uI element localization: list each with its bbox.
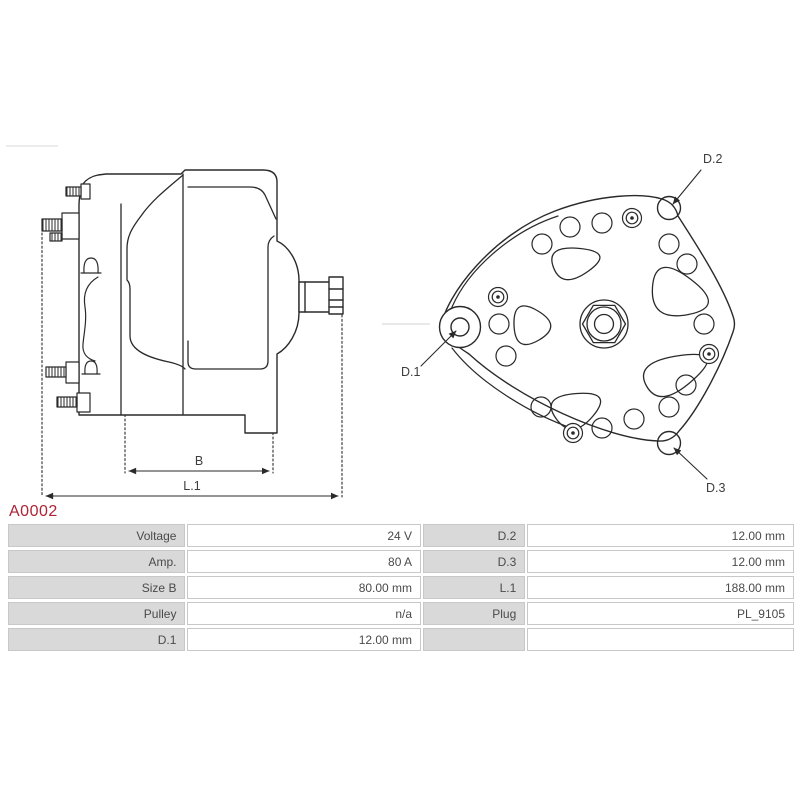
spec-value-cell: 80 A <box>187 550 421 573</box>
spec-row: Amp. 80 A D.3 12.00 mm <box>8 550 794 573</box>
spec-value-cell: 12.00 mm <box>187 628 421 651</box>
spec-row: Voltage 24 V D.2 12.00 mm <box>8 524 794 547</box>
spec-row: Pulley n/a Plug PL_9105 <box>8 602 794 625</box>
spec-label-cell: D.1 <box>8 628 185 651</box>
spec-value-cell: 80.00 mm <box>187 576 421 599</box>
part-code: A0002 <box>9 503 58 521</box>
spec-value-cell: 188.00 mm <box>527 576 794 599</box>
spec-row: Size B 80.00 mm L.1 188.00 mm <box>8 576 794 599</box>
spec-value-cell <box>527 628 794 651</box>
spec-label-cell: Plug <box>423 602 525 625</box>
label-d3: D.3 <box>706 481 726 495</box>
label-d2: D.2 <box>703 152 723 166</box>
spec-label-cell: D.3 <box>423 550 525 573</box>
spec-row: D.1 12.00 mm <box>8 628 794 651</box>
spec-label-cell <box>423 628 525 651</box>
spec-label-cell: Voltage <box>8 524 185 547</box>
dim-b-label: B <box>195 454 203 468</box>
spec-label-cell: Pulley <box>8 602 185 625</box>
shaft <box>299 277 343 314</box>
spec-value-cell: 12.00 mm <box>527 524 794 547</box>
spec-value-cell: PL_9105 <box>527 602 794 625</box>
spec-value-cell: 12.00 mm <box>527 550 794 573</box>
spec-table: Voltage 24 V D.2 12.00 mm Amp. 80 A D.3 … <box>6 521 796 654</box>
spec-label-cell: D.2 <box>423 524 525 547</box>
dim-l1-label: L.1 <box>183 479 200 493</box>
product-diagram: B L.1 <box>0 0 800 520</box>
product-page: B L.1 <box>0 0 800 800</box>
spec-label-cell: Size B <box>8 576 185 599</box>
spec-label-cell: Amp. <box>8 550 185 573</box>
label-d1: D.1 <box>401 365 421 379</box>
front-view-drawing: D.2 D.1 D.3 <box>401 152 735 495</box>
side-view-drawing: B L.1 <box>42 170 343 497</box>
spec-label-cell: L.1 <box>423 576 525 599</box>
spec-value-cell: 24 V <box>187 524 421 547</box>
housing-outline <box>79 170 299 433</box>
spec-value-cell: n/a <box>187 602 421 625</box>
